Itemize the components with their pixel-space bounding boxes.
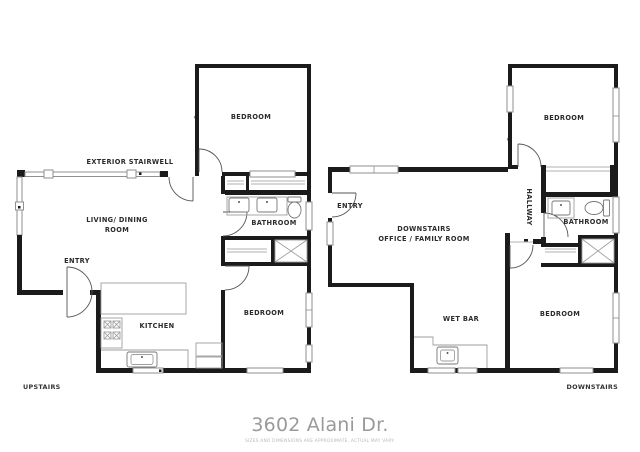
upstairs-plan: BEDROOM EXTERIOR STAIRWELL LIVING/ DININ… bbox=[16, 64, 313, 391]
appliance bbox=[196, 343, 222, 356]
sink-icon bbox=[229, 198, 249, 212]
shower-icon bbox=[582, 239, 614, 263]
room-label-kitchen: KITCHEN bbox=[140, 322, 175, 330]
appliance bbox=[196, 357, 222, 368]
upstairs-fixtures bbox=[101, 181, 307, 368]
shower-icon bbox=[275, 240, 307, 262]
disclaimer-text: SIZES AND DIMENSIONS ARE APPROXIMATE, AC… bbox=[245, 438, 395, 444]
toilet-icon bbox=[585, 200, 610, 216]
room-label-bedroom-bottom: BEDROOM bbox=[244, 309, 284, 317]
room-label-bathroom: BATHROOM bbox=[563, 218, 608, 226]
stove-icon bbox=[101, 318, 122, 348]
room-label-hallway: HALLWAY bbox=[525, 188, 533, 225]
kitchen-sink-icon bbox=[127, 352, 157, 367]
room-label-bedroom-top: BEDROOM bbox=[231, 113, 271, 121]
sink-icon bbox=[548, 198, 574, 218]
room-label-office-2: OFFICE / FAMILY ROOM bbox=[378, 235, 469, 243]
room-label-exterior-stairwell: EXTERIOR STAIRWELL bbox=[87, 158, 174, 166]
room-label-bedroom-bottom: BEDROOM bbox=[540, 310, 580, 318]
room-label-entry: ENTRY bbox=[337, 202, 363, 210]
address-title: 3602 Alani Dr. bbox=[251, 414, 388, 436]
toilet-icon bbox=[288, 197, 301, 202]
room-label-entry: ENTRY bbox=[64, 257, 90, 265]
downstairs-plan: BEDROOM ENTRY DOWNSTAIRS OFFICE / FAMILY… bbox=[327, 64, 619, 391]
kitchen-peninsula bbox=[101, 283, 186, 314]
downstairs-labels: BEDROOM ENTRY DOWNSTAIRS OFFICE / FAMILY… bbox=[337, 114, 618, 391]
room-label-bedroom-top: BEDROOM bbox=[544, 114, 584, 122]
floor-label-downstairs: DOWNSTAIRS bbox=[567, 383, 619, 391]
title-block: 3602 Alani Dr. SIZES AND DIMENSIONS ARE … bbox=[245, 414, 395, 444]
wet-bar-sink-icon bbox=[437, 347, 458, 364]
room-label-wet-bar: WET BAR bbox=[443, 315, 479, 323]
downstairs-wall-ticks bbox=[329, 65, 618, 307]
sink-icon bbox=[257, 198, 277, 212]
floor-plan-page: BEDROOM EXTERIOR STAIRWELL LIVING/ DININ… bbox=[0, 0, 640, 452]
downstairs-windows bbox=[327, 86, 619, 373]
room-label-living-dining: LIVING/ DINING bbox=[86, 216, 148, 224]
room-label-office-1: DOWNSTAIRS bbox=[397, 225, 451, 233]
floor-label-upstairs: UPSTAIRS bbox=[23, 383, 61, 391]
room-label-living-dining-2: ROOM bbox=[105, 226, 129, 234]
room-label-bathroom: BATHROOM bbox=[251, 219, 296, 227]
floor-plan-drawing: BEDROOM EXTERIOR STAIRWELL LIVING/ DININ… bbox=[0, 0, 640, 452]
